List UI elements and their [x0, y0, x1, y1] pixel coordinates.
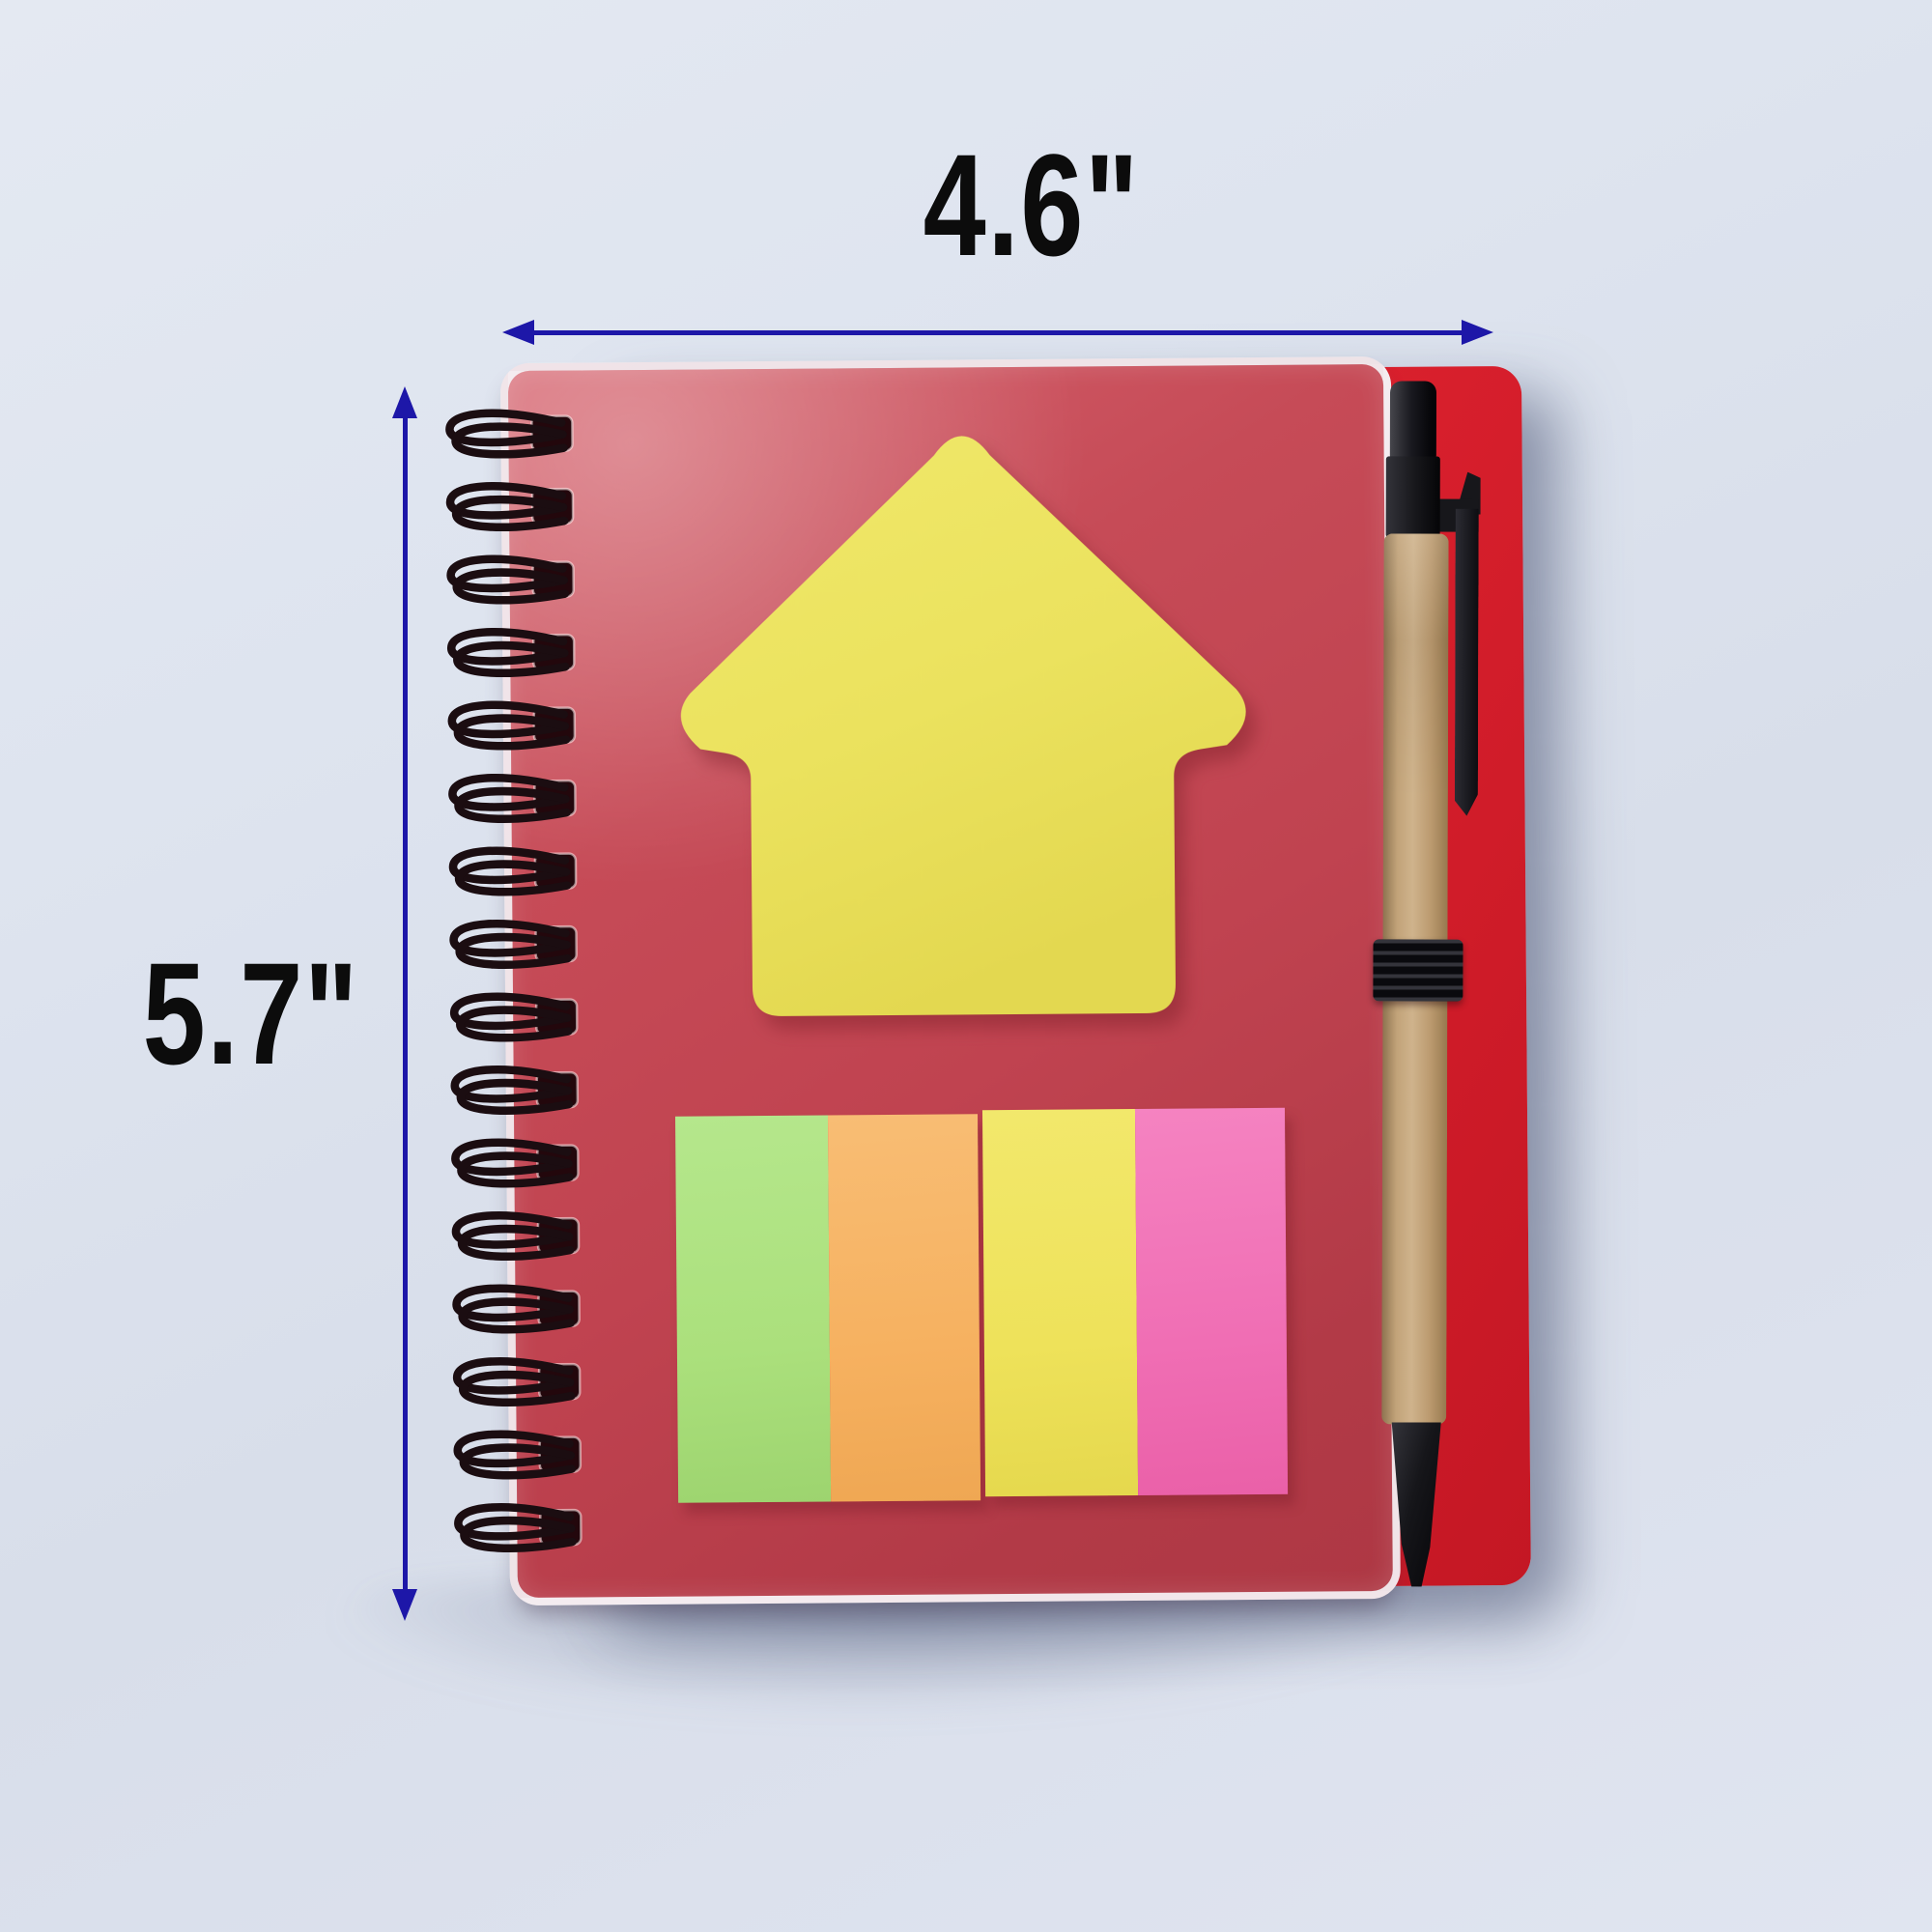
pen-tip-cone [1388, 1422, 1444, 1586]
pen-clip [1455, 509, 1479, 816]
arrowhead-right-icon [1462, 320, 1493, 345]
spiral-loop [452, 704, 575, 747]
pen-elastic-band [1373, 939, 1463, 1001]
page-marker-orange [828, 1114, 980, 1501]
spiral-loop [450, 486, 573, 528]
spiral-loop [455, 1069, 578, 1112]
page-marker-yellow [982, 1109, 1138, 1496]
spiral-loop [456, 1215, 579, 1258]
spiral-loop [458, 1507, 581, 1549]
arrow-note-shape [679, 434, 1249, 1017]
pen-push-button [1390, 381, 1436, 460]
spiral-loop [453, 850, 576, 893]
page-marker-green [675, 1116, 831, 1503]
spiral-loop [453, 923, 576, 966]
arrowhead-down-icon [392, 1589, 417, 1621]
spiral-loop [451, 632, 574, 674]
width-dimension-line [526, 330, 1470, 335]
spiral-notebook [435, 343, 1594, 1636]
page-marker-pad-green-orange [675, 1114, 980, 1502]
width-dimension-arrow [502, 320, 1493, 345]
spiral-loop [454, 996, 577, 1038]
page-marker-pad-yellow-pink [982, 1108, 1288, 1496]
spiral-loop [457, 1361, 580, 1404]
height-dimension-label: 5.7" [58, 941, 444, 1086]
spiral-loop [449, 412, 572, 455]
height-dimension-line [403, 410, 408, 1598]
product-photo-canvas: 4.6" 5.7" [0, 0, 1932, 1932]
height-dimension-text: 5.7" [143, 941, 359, 1086]
pen-collar [1386, 456, 1440, 537]
height-dimension-arrow [392, 386, 417, 1621]
page-marker-pink [1135, 1108, 1288, 1495]
width-dimension-text: 4.6" [923, 132, 1140, 277]
eco-pen [1381, 379, 1491, 1592]
arrow-sticky-note [668, 426, 1258, 1017]
spiral-loop [456, 1288, 579, 1330]
spiral-loop [455, 1142, 578, 1184]
spiral-loop [452, 778, 575, 820]
width-dimension-label: 4.6" [838, 132, 1225, 277]
spiral-loop [458, 1434, 581, 1476]
spiral-loop [450, 558, 573, 601]
spiral-binding [440, 404, 593, 1569]
